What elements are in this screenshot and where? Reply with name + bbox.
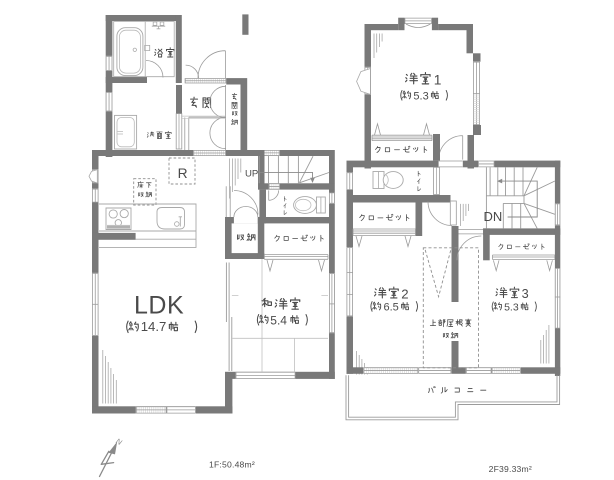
svg-text:5.3: 5.3: [504, 301, 519, 313]
svg-text:LDK: LDK: [134, 292, 184, 320]
svg-text:2F39.33m²: 2F39.33m²: [489, 464, 532, 474]
svg-text:5.3: 5.3: [413, 90, 428, 102]
svg-text:5.4: 5.4: [270, 313, 287, 327]
svg-text:14.7: 14.7: [141, 319, 167, 334]
svg-text:DN: DN: [484, 209, 503, 224]
svg-text:1: 1: [434, 73, 442, 88]
svg-text:6.5: 6.5: [384, 302, 399, 314]
svg-text:UP: UP: [245, 168, 258, 179]
svg-text:2: 2: [401, 286, 408, 301]
svg-text:1F:50.48m²: 1F:50.48m²: [209, 460, 255, 470]
svg-text:3: 3: [522, 287, 529, 301]
svg-text:R: R: [178, 166, 188, 181]
